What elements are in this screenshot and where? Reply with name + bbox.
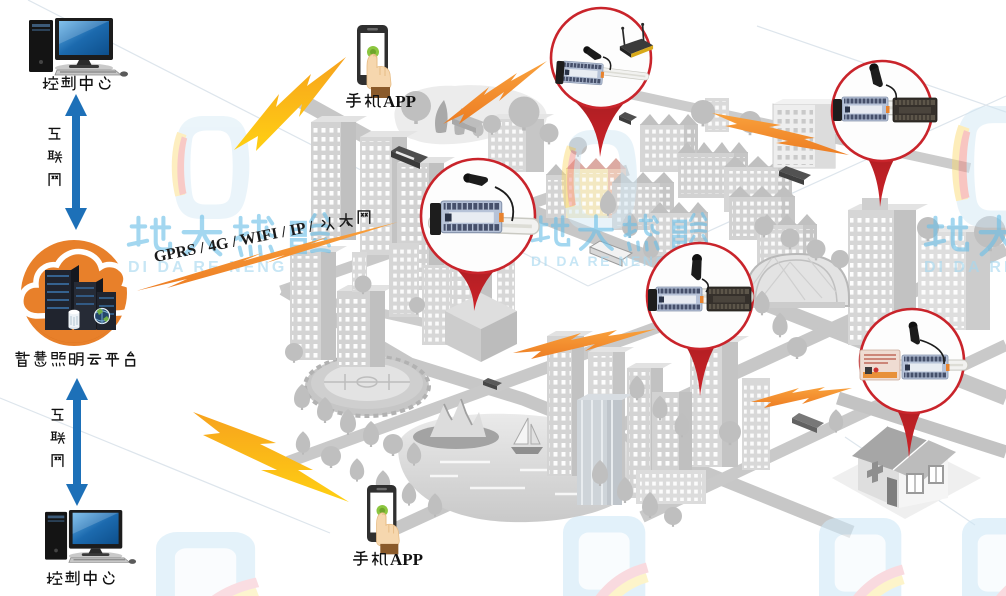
svg-text:APP: APP — [383, 92, 416, 111]
svg-text:DI DA RE: DI DA RE — [924, 259, 1006, 276]
svg-text:DI DA RE NENG: DI DA RE NENG — [531, 253, 669, 269]
svg-text:APP: APP — [390, 550, 423, 569]
